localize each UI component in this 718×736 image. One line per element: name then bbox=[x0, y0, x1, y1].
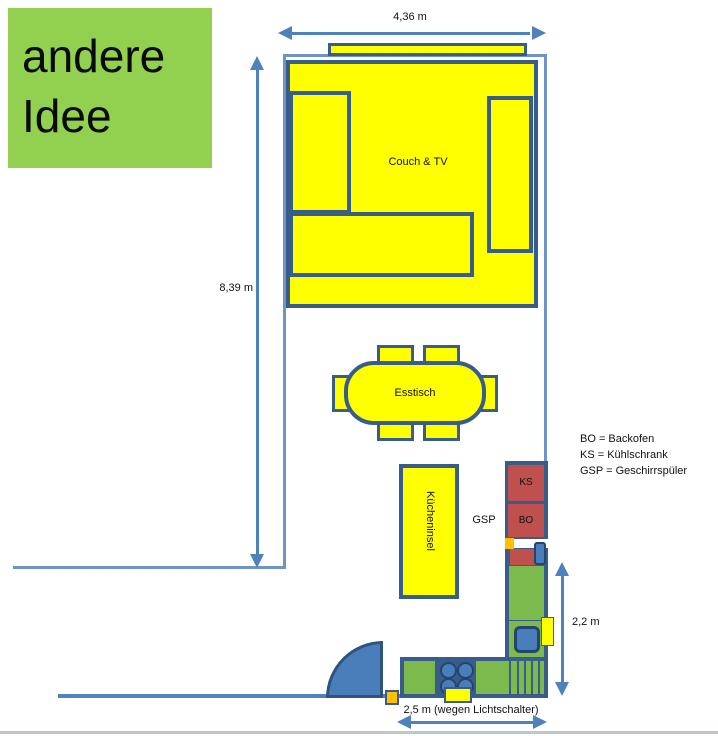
dimension-top-label: 4,36 m bbox=[360, 11, 460, 24]
oven-box: BO bbox=[508, 504, 544, 537]
arrowhead-left-icon bbox=[397, 715, 411, 729]
door-swing bbox=[326, 641, 383, 698]
arrowhead-down-icon bbox=[555, 682, 569, 696]
kitchen-island-label: Kücheninsel bbox=[423, 491, 436, 551]
title-text: andere Idee bbox=[22, 26, 202, 146]
floorplan-canvas: andere Idee 4,36 m 8,39 m Couch & TV Ess… bbox=[0, 0, 718, 736]
legend-line-bo: BO = Backofen bbox=[580, 431, 718, 447]
arrowhead-up-icon bbox=[250, 56, 264, 70]
oven-label: BO bbox=[508, 514, 544, 527]
arrowhead-up-icon bbox=[555, 562, 569, 576]
stove-burner-2 bbox=[457, 662, 474, 679]
couch-cushion-right bbox=[487, 96, 533, 253]
light-switch-bottom bbox=[444, 687, 472, 703]
light-switch-right bbox=[541, 617, 554, 646]
stove-burner-1 bbox=[440, 662, 457, 679]
faucet bbox=[534, 542, 546, 565]
couch-label: Couch & TV bbox=[368, 156, 468, 169]
dishwasher-line-icon bbox=[538, 661, 540, 694]
wall-ledge-left bbox=[13, 566, 286, 569]
kitchen-island: Kücheninsel bbox=[399, 464, 459, 599]
couch-cushion-bottom bbox=[289, 212, 474, 277]
dimension-top-arrow-line bbox=[290, 32, 530, 35]
dimension-right-arrow-line bbox=[561, 574, 564, 684]
bottom-divider-line bbox=[0, 731, 718, 734]
fridge-label: KS bbox=[508, 476, 544, 489]
dimension-bottom-arrow-line bbox=[409, 721, 533, 724]
kitchen-counter-bottom bbox=[400, 657, 548, 698]
tv-board bbox=[328, 43, 527, 56]
dimension-right-label: 2,2 m bbox=[572, 616, 617, 629]
cabinet-tall bbox=[509, 566, 544, 620]
cabinet-left bbox=[404, 661, 435, 694]
marker-orange-door bbox=[385, 690, 399, 705]
arrowhead-right-icon bbox=[532, 26, 546, 40]
dishwasher-line-icon bbox=[517, 661, 519, 694]
sink-cabinet bbox=[509, 621, 544, 658]
arrowhead-right-icon bbox=[533, 715, 547, 729]
sink bbox=[514, 626, 540, 653]
dishwasher-line-icon bbox=[531, 661, 533, 694]
dining-table-label: Esstisch bbox=[384, 387, 446, 400]
dimension-left-label: 8,39 m bbox=[198, 282, 253, 295]
arrowhead-left-icon bbox=[278, 26, 292, 40]
dishwasher-front bbox=[511, 661, 544, 694]
cabinet-right bbox=[476, 661, 509, 694]
marker-orange-column bbox=[505, 538, 514, 549]
couch-cushion-left bbox=[289, 91, 351, 214]
dishwasher-line-icon bbox=[524, 661, 526, 694]
legend-line-ks: KS = Kühlschrank bbox=[580, 447, 718, 463]
title-box: andere Idee bbox=[8, 8, 212, 168]
legend: BO = Backofen KS = Kühlschrank GSP = Ges… bbox=[580, 431, 718, 479]
arrowhead-down-icon bbox=[250, 554, 264, 568]
fridge-box: KS bbox=[508, 465, 544, 501]
legend-line-gsp: GSP = Geschirrspüler bbox=[580, 463, 718, 479]
gsp-label: GSP bbox=[468, 514, 500, 527]
dimension-left-arrow-line bbox=[256, 68, 259, 556]
